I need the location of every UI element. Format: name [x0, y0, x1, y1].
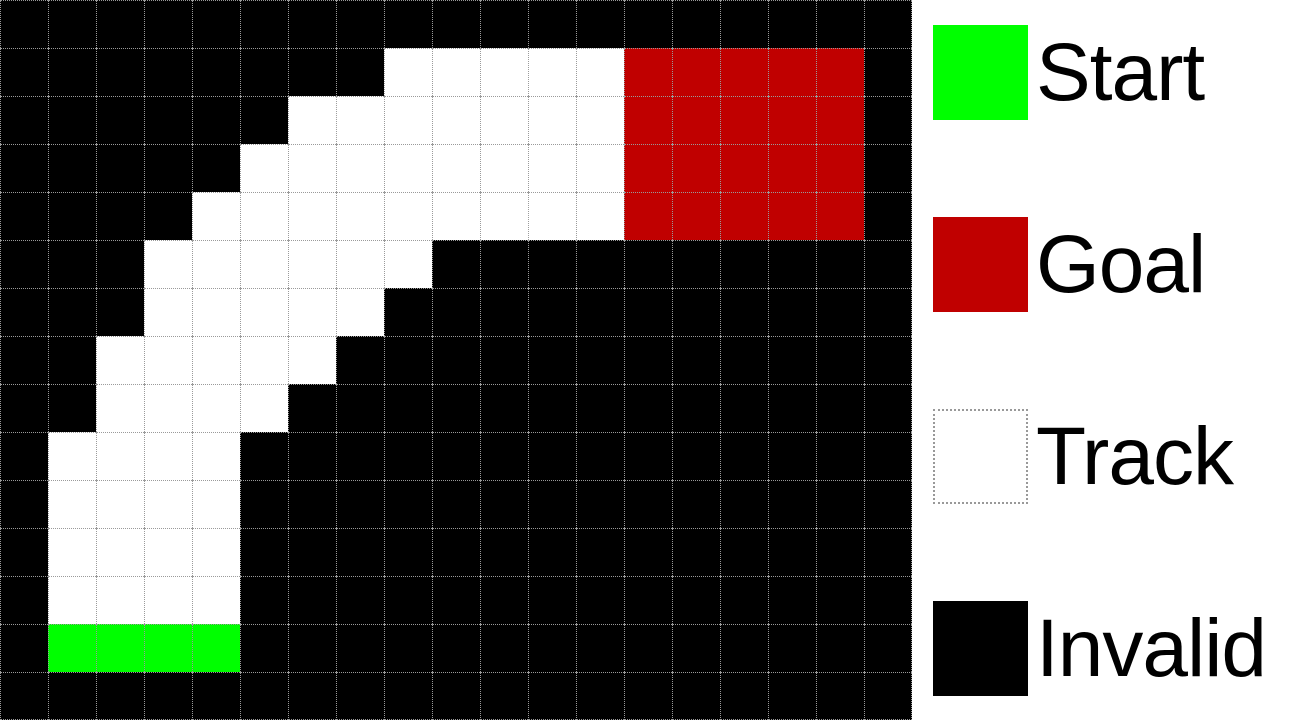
invalid-cell [48, 48, 96, 96]
track-cell [192, 384, 240, 432]
goal-cell [624, 144, 672, 192]
invalid-cell [192, 96, 240, 144]
track-cell [240, 288, 288, 336]
track-cell [336, 288, 384, 336]
invalid-cell [624, 672, 672, 720]
track-cell [480, 48, 528, 96]
track-cell [192, 576, 240, 624]
invalid-cell [240, 432, 288, 480]
track-cell [144, 480, 192, 528]
track-cell [336, 240, 384, 288]
track-cell [384, 240, 432, 288]
track-cell [144, 336, 192, 384]
invalid-cell [864, 48, 912, 96]
invalid-cell [480, 240, 528, 288]
invalid-cell [48, 336, 96, 384]
invalid-cell [480, 288, 528, 336]
track-cell [480, 96, 528, 144]
invalid-cell [336, 384, 384, 432]
invalid-cell [288, 480, 336, 528]
track-cell [384, 144, 432, 192]
goal-cell [624, 96, 672, 144]
invalid-cell [336, 528, 384, 576]
invalid-cell [864, 480, 912, 528]
invalid-cell [432, 576, 480, 624]
track-cell [48, 480, 96, 528]
invalid-cell [816, 432, 864, 480]
invalid-cell [672, 288, 720, 336]
invalid-cell [432, 0, 480, 48]
invalid-cell [48, 144, 96, 192]
invalid-cell [816, 576, 864, 624]
track-cell [528, 144, 576, 192]
invalid-cell [0, 432, 48, 480]
invalid-cell [48, 288, 96, 336]
invalid-cell [720, 528, 768, 576]
track-cell [192, 528, 240, 576]
invalid-cell [0, 48, 48, 96]
invalid-cell [48, 672, 96, 720]
invalid-cell [816, 288, 864, 336]
start-cell [192, 624, 240, 672]
invalid-cell [432, 288, 480, 336]
track-cell [48, 576, 96, 624]
invalid-cell [672, 672, 720, 720]
invalid-cell [0, 336, 48, 384]
track-cell [576, 192, 624, 240]
track-cell [384, 96, 432, 144]
invalid-cell [720, 240, 768, 288]
invalid-cell [864, 528, 912, 576]
invalid-cell [816, 0, 864, 48]
legend-label-invalid: Invalid [1036, 608, 1266, 690]
invalid-cell [768, 624, 816, 672]
invalid-cell [288, 48, 336, 96]
invalid-cell [864, 0, 912, 48]
invalid-cell [864, 240, 912, 288]
invalid-cell [624, 432, 672, 480]
track-cell [240, 240, 288, 288]
invalid-cell [576, 624, 624, 672]
goal-cell [672, 192, 720, 240]
invalid-cell [336, 480, 384, 528]
goal-swatch [933, 217, 1028, 312]
invalid-cell [576, 576, 624, 624]
invalid-swatch [933, 601, 1028, 696]
invalid-cell [240, 480, 288, 528]
track-cell [192, 192, 240, 240]
invalid-cell [96, 48, 144, 96]
invalid-cell [0, 0, 48, 48]
track-cell [192, 432, 240, 480]
track-cell [432, 192, 480, 240]
track-cell [240, 336, 288, 384]
invalid-cell [0, 480, 48, 528]
invalid-cell [816, 384, 864, 432]
invalid-cell [48, 96, 96, 144]
track-cell [192, 480, 240, 528]
track-cell [432, 144, 480, 192]
invalid-cell [96, 0, 144, 48]
invalid-cell [768, 384, 816, 432]
invalid-cell [480, 624, 528, 672]
track-cell [528, 48, 576, 96]
invalid-cell [384, 0, 432, 48]
track-cell [48, 432, 96, 480]
invalid-cell [816, 624, 864, 672]
invalid-cell [384, 624, 432, 672]
track-cell [96, 528, 144, 576]
invalid-cell [720, 384, 768, 432]
goal-cell [624, 192, 672, 240]
invalid-cell [528, 240, 576, 288]
invalid-cell [384, 336, 432, 384]
invalid-cell [432, 432, 480, 480]
track-swatch [933, 409, 1028, 504]
invalid-cell [144, 192, 192, 240]
invalid-cell [768, 336, 816, 384]
track-cell [240, 144, 288, 192]
goal-cell [816, 144, 864, 192]
invalid-cell [816, 672, 864, 720]
goal-cell [672, 48, 720, 96]
invalid-cell [576, 384, 624, 432]
invalid-cell [384, 528, 432, 576]
invalid-cell [624, 528, 672, 576]
invalid-cell [624, 576, 672, 624]
invalid-cell [864, 432, 912, 480]
track-cell [96, 480, 144, 528]
invalid-cell [672, 336, 720, 384]
invalid-cell [240, 96, 288, 144]
racetrack-figure: Start Goal Track Invalid [0, 0, 1302, 720]
track-cell [288, 288, 336, 336]
invalid-cell [0, 240, 48, 288]
invalid-cell [48, 192, 96, 240]
invalid-cell [768, 288, 816, 336]
goal-cell [768, 48, 816, 96]
invalid-cell [720, 672, 768, 720]
invalid-cell [624, 240, 672, 288]
invalid-cell [96, 240, 144, 288]
track-cell [288, 336, 336, 384]
invalid-cell [336, 432, 384, 480]
invalid-cell [432, 336, 480, 384]
invalid-cell [672, 240, 720, 288]
invalid-cell [768, 0, 816, 48]
invalid-cell [0, 192, 48, 240]
invalid-cell [816, 240, 864, 288]
track-cell [96, 336, 144, 384]
invalid-cell [336, 672, 384, 720]
invalid-cell [864, 576, 912, 624]
invalid-cell [624, 384, 672, 432]
invalid-cell [48, 384, 96, 432]
invalid-cell [144, 672, 192, 720]
invalid-cell [336, 0, 384, 48]
invalid-cell [0, 672, 48, 720]
goal-cell [672, 144, 720, 192]
legend-panel: Start Goal Track Invalid [912, 0, 1302, 720]
goal-cell [672, 96, 720, 144]
invalid-cell [528, 528, 576, 576]
track-cell [528, 192, 576, 240]
invalid-cell [288, 672, 336, 720]
track-cell [192, 288, 240, 336]
track-cell [432, 96, 480, 144]
legend-item-track: Track [933, 409, 1233, 504]
invalid-cell [240, 528, 288, 576]
invalid-cell [288, 384, 336, 432]
invalid-cell [96, 672, 144, 720]
goal-cell [816, 48, 864, 96]
invalid-cell [480, 480, 528, 528]
track-cell [528, 96, 576, 144]
invalid-cell [672, 0, 720, 48]
invalid-cell [48, 0, 96, 48]
invalid-cell [624, 288, 672, 336]
goal-cell [768, 192, 816, 240]
invalid-cell [0, 96, 48, 144]
invalid-cell [528, 384, 576, 432]
invalid-cell [480, 432, 528, 480]
invalid-cell [480, 384, 528, 432]
invalid-cell [288, 576, 336, 624]
track-cell [576, 96, 624, 144]
invalid-cell [240, 48, 288, 96]
track-cell [240, 192, 288, 240]
invalid-cell [720, 480, 768, 528]
invalid-cell [672, 384, 720, 432]
goal-cell [624, 48, 672, 96]
invalid-cell [864, 288, 912, 336]
invalid-cell [672, 432, 720, 480]
invalid-cell [576, 0, 624, 48]
track-cell [144, 432, 192, 480]
invalid-cell [720, 336, 768, 384]
track-cell [144, 384, 192, 432]
invalid-cell [480, 576, 528, 624]
track-cell [192, 336, 240, 384]
invalid-cell [576, 432, 624, 480]
invalid-cell [144, 48, 192, 96]
invalid-cell [384, 288, 432, 336]
invalid-cell [0, 144, 48, 192]
invalid-cell [864, 144, 912, 192]
legend-item-goal: Goal [933, 217, 1205, 312]
invalid-cell [672, 528, 720, 576]
track-cell [48, 528, 96, 576]
start-cell [144, 624, 192, 672]
invalid-cell [96, 144, 144, 192]
track-cell [336, 96, 384, 144]
invalid-cell [768, 432, 816, 480]
invalid-cell [768, 672, 816, 720]
invalid-cell [768, 480, 816, 528]
invalid-cell [432, 480, 480, 528]
invalid-cell [384, 576, 432, 624]
invalid-cell [624, 0, 672, 48]
invalid-cell [96, 288, 144, 336]
track-cell [576, 144, 624, 192]
track-cell [576, 48, 624, 96]
invalid-cell [192, 144, 240, 192]
invalid-cell [144, 0, 192, 48]
invalid-cell [288, 432, 336, 480]
track-cell [240, 384, 288, 432]
legend-label-goal: Goal [1036, 224, 1205, 306]
invalid-cell [576, 528, 624, 576]
track-cell [96, 432, 144, 480]
start-swatch [933, 25, 1028, 120]
invalid-cell [816, 480, 864, 528]
invalid-cell [864, 672, 912, 720]
invalid-cell [384, 384, 432, 432]
start-cell [48, 624, 96, 672]
invalid-cell [864, 336, 912, 384]
invalid-cell [576, 672, 624, 720]
invalid-cell [336, 336, 384, 384]
invalid-cell [240, 624, 288, 672]
invalid-cell [288, 624, 336, 672]
invalid-cell [816, 528, 864, 576]
invalid-cell [864, 192, 912, 240]
invalid-cell [0, 288, 48, 336]
invalid-cell [768, 240, 816, 288]
track-cell [432, 48, 480, 96]
invalid-cell [288, 528, 336, 576]
legend-label-track: Track [1036, 416, 1233, 498]
invalid-cell [432, 384, 480, 432]
invalid-cell [768, 576, 816, 624]
invalid-cell [576, 480, 624, 528]
invalid-cell [624, 480, 672, 528]
track-cell [144, 576, 192, 624]
invalid-cell [480, 528, 528, 576]
racetrack-grid [0, 0, 912, 720]
legend-item-invalid: Invalid [933, 601, 1266, 696]
invalid-cell [144, 144, 192, 192]
track-cell [288, 96, 336, 144]
invalid-cell [528, 336, 576, 384]
invalid-cell [576, 240, 624, 288]
legend-item-start: Start [933, 25, 1204, 120]
goal-cell [816, 96, 864, 144]
invalid-cell [384, 672, 432, 720]
invalid-cell [240, 576, 288, 624]
track-cell [384, 48, 432, 96]
invalid-cell [720, 576, 768, 624]
invalid-cell [528, 624, 576, 672]
invalid-cell [288, 0, 336, 48]
goal-cell [720, 144, 768, 192]
invalid-cell [96, 192, 144, 240]
invalid-cell [720, 432, 768, 480]
invalid-cell [432, 528, 480, 576]
track-cell [384, 192, 432, 240]
track-cell [480, 144, 528, 192]
invalid-cell [528, 672, 576, 720]
track-cell [96, 384, 144, 432]
invalid-cell [528, 432, 576, 480]
start-cell [96, 624, 144, 672]
invalid-cell [528, 288, 576, 336]
track-cell [144, 288, 192, 336]
invalid-cell [48, 240, 96, 288]
invalid-cell [0, 624, 48, 672]
track-cell [96, 576, 144, 624]
invalid-cell [864, 624, 912, 672]
legend-label-start: Start [1036, 32, 1204, 114]
invalid-cell [480, 672, 528, 720]
invalid-cell [864, 96, 912, 144]
invalid-cell [672, 480, 720, 528]
invalid-cell [240, 672, 288, 720]
invalid-cell [144, 96, 192, 144]
invalid-cell [96, 96, 144, 144]
invalid-cell [0, 576, 48, 624]
invalid-cell [720, 0, 768, 48]
invalid-cell [576, 288, 624, 336]
invalid-cell [720, 288, 768, 336]
invalid-cell [432, 624, 480, 672]
invalid-cell [0, 528, 48, 576]
goal-cell [816, 192, 864, 240]
track-cell [288, 240, 336, 288]
invalid-cell [816, 336, 864, 384]
invalid-cell [624, 624, 672, 672]
goal-cell [768, 144, 816, 192]
invalid-cell [528, 480, 576, 528]
track-cell [288, 144, 336, 192]
invalid-cell [480, 336, 528, 384]
invalid-cell [432, 240, 480, 288]
invalid-cell [528, 576, 576, 624]
invalid-cell [432, 672, 480, 720]
invalid-cell [192, 672, 240, 720]
invalid-cell [384, 480, 432, 528]
invalid-cell [720, 624, 768, 672]
invalid-cell [672, 624, 720, 672]
invalid-cell [624, 336, 672, 384]
goal-cell [720, 96, 768, 144]
track-cell [288, 192, 336, 240]
goal-cell [768, 96, 816, 144]
invalid-cell [768, 528, 816, 576]
invalid-cell [384, 432, 432, 480]
invalid-cell [480, 0, 528, 48]
invalid-cell [528, 0, 576, 48]
invalid-cell [672, 576, 720, 624]
invalid-cell [0, 384, 48, 432]
invalid-cell [192, 48, 240, 96]
track-cell [336, 144, 384, 192]
invalid-cell [336, 624, 384, 672]
invalid-cell [240, 0, 288, 48]
track-cell [192, 240, 240, 288]
goal-cell [720, 192, 768, 240]
invalid-cell [192, 0, 240, 48]
track-cell [144, 240, 192, 288]
invalid-cell [336, 576, 384, 624]
track-cell [336, 192, 384, 240]
goal-cell [720, 48, 768, 96]
track-cell [480, 192, 528, 240]
invalid-cell [336, 48, 384, 96]
invalid-cell [864, 384, 912, 432]
track-cell [144, 528, 192, 576]
invalid-cell [576, 336, 624, 384]
